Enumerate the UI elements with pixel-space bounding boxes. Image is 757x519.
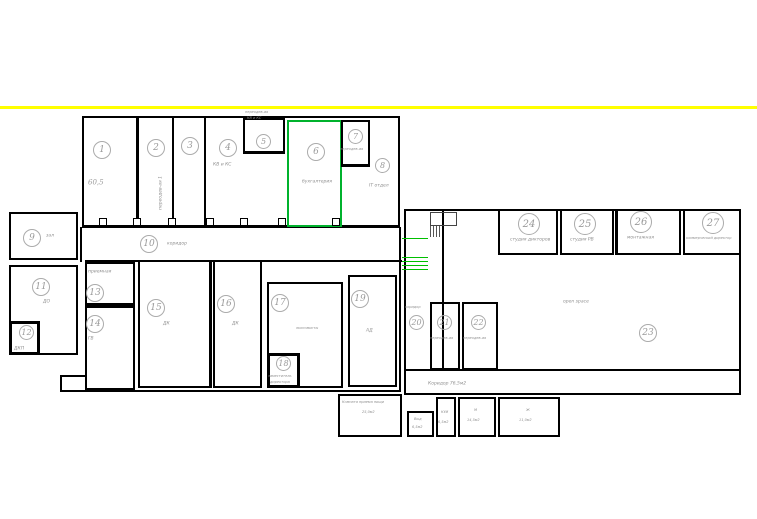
room-27-label: коммерческий директор [686, 236, 731, 240]
room-13-number: 13 [86, 284, 104, 302]
room-15-number: 15 [147, 299, 165, 317]
room-zh[interactable] [498, 397, 560, 437]
room-22-label: переодев-ая [463, 336, 486, 340]
room-m-label: М [474, 408, 477, 412]
room-20-number: 20 [409, 315, 424, 330]
room-kui-area: 6,5м2 [438, 420, 448, 424]
room-4-label: КВ и КС [213, 162, 231, 167]
room-25-label: студия РВ [570, 237, 594, 242]
room-1-number: 1 [93, 141, 111, 159]
room-vyd[interactable] [407, 411, 434, 437]
wall-segment [204, 116, 206, 228]
wall-segment [404, 369, 741, 371]
door-notch [99, 218, 107, 226]
room-18-number: 18 [276, 356, 291, 371]
room-19-label: АД [366, 328, 373, 333]
wall-segment [80, 227, 82, 262]
room-21-number: 21 [437, 315, 452, 330]
room-20-label: коридор [405, 305, 421, 309]
meal-room-area: 25,0м2 [362, 410, 375, 414]
room-2-label: переодев-ая 1 [158, 176, 163, 210]
green-hatch-line [402, 238, 428, 239]
room-m-area: 14,5м2 [467, 418, 480, 422]
room-7-number: 7 [348, 129, 363, 144]
room-19-number: 19 [351, 290, 369, 308]
door-notch [206, 218, 214, 226]
meal-room-label: Комната приема пищи [342, 400, 384, 404]
room-m[interactable] [458, 397, 496, 437]
wall-segment [60, 375, 85, 377]
floor-plan-canvas: 1 2 3 4 5 6 7 8 9 10 11 12 13 14 15 16 1… [0, 0, 757, 519]
room-12-label: ДКП [14, 346, 24, 351]
staircase [430, 212, 457, 226]
room-5-number: 5 [256, 134, 271, 149]
room-24-number: 24 [518, 213, 540, 235]
room-9-number: 9 [23, 229, 41, 247]
room-vyd-label: Выд [414, 417, 422, 421]
room-17-label: экономисты [296, 326, 318, 330]
room-13-label: приемная [88, 269, 111, 274]
corridor-area-label: Коридор 76,5м2 [428, 381, 466, 386]
room-23-number: 23 [639, 324, 657, 342]
door-notch [168, 218, 176, 226]
staircase-steps [430, 226, 440, 237]
room-16-label: ДК [232, 321, 239, 326]
room-18-label-line2: директора [270, 380, 290, 384]
room-vyd-area: 6,5м2 [412, 425, 422, 429]
room-22-number: 22 [471, 315, 486, 330]
room-zh-area: 11,0м2 [519, 418, 532, 422]
room-10-label: коридор [167, 241, 187, 246]
room-26-label: монтажная [627, 235, 654, 240]
room-11-number: 11 [32, 278, 50, 296]
green-hatch-line [402, 257, 428, 258]
room-8-label: IT отдел [369, 183, 389, 188]
room-8-number: 8 [375, 158, 390, 173]
wall-segment [136, 116, 139, 228]
room-9-label: зал [46, 233, 54, 238]
door-notch [278, 218, 286, 226]
door-notch [133, 218, 141, 226]
room-3-number: 3 [181, 137, 199, 155]
room-24-label: студия дикторов [510, 237, 550, 242]
room-14-number: 14 [86, 315, 104, 333]
room-26-number: 26 [630, 211, 652, 233]
wall-segment [93, 390, 401, 392]
room-9[interactable] [9, 212, 78, 260]
room-21-label: переодев-ая [430, 336, 453, 340]
room-zh-label: Ж [526, 408, 530, 412]
room-14-label: ГВ [88, 336, 94, 341]
room-5-note-line1: переодев-ая [245, 110, 268, 114]
wall-segment [60, 390, 95, 392]
room-7-label: переодев-ая [340, 147, 363, 151]
green-hatch-line [402, 261, 428, 262]
wall-segment [172, 116, 174, 228]
room-1-area: 60,5 [88, 179, 104, 187]
green-hatch-line [402, 269, 428, 270]
room-10-number: 10 [140, 235, 158, 253]
room-27-number: 27 [702, 212, 724, 234]
room-kui-label: КУИ [441, 410, 448, 414]
room-18-label-line1: заместитель [268, 374, 292, 378]
room-12-number: 12 [19, 325, 34, 340]
room-6-label: бухгалтерия [302, 179, 332, 184]
room-6-number: 6 [307, 143, 325, 161]
room-17-number: 17 [271, 294, 289, 312]
green-hatch-line [402, 265, 428, 266]
room-5-note-line2: КВ и КС [247, 116, 261, 120]
room-2-number: 2 [147, 139, 165, 157]
room-23-label: open space [563, 299, 589, 304]
door-notch [332, 218, 340, 226]
room-15-label: ДК [163, 321, 170, 326]
room-kui[interactable] [436, 397, 456, 437]
door-notch [240, 218, 248, 226]
room-15[interactable] [138, 260, 212, 388]
room-25-number: 25 [574, 213, 596, 235]
room-6-highlight[interactable] [287, 120, 342, 227]
wall-segment [399, 227, 401, 392]
room-4-number: 4 [219, 139, 237, 157]
room-16-number: 16 [217, 295, 235, 313]
yellow-reference-line [0, 106, 757, 109]
room-11-label: ДО [43, 299, 50, 304]
